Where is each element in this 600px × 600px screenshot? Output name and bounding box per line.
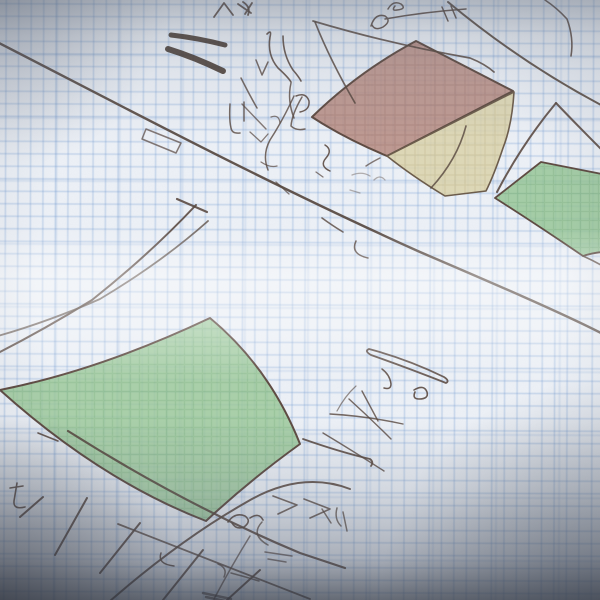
pencil-sketch-layer	[0, 0, 600, 600]
sketch-photo	[0, 0, 600, 600]
paper-texture	[0, 0, 600, 600]
